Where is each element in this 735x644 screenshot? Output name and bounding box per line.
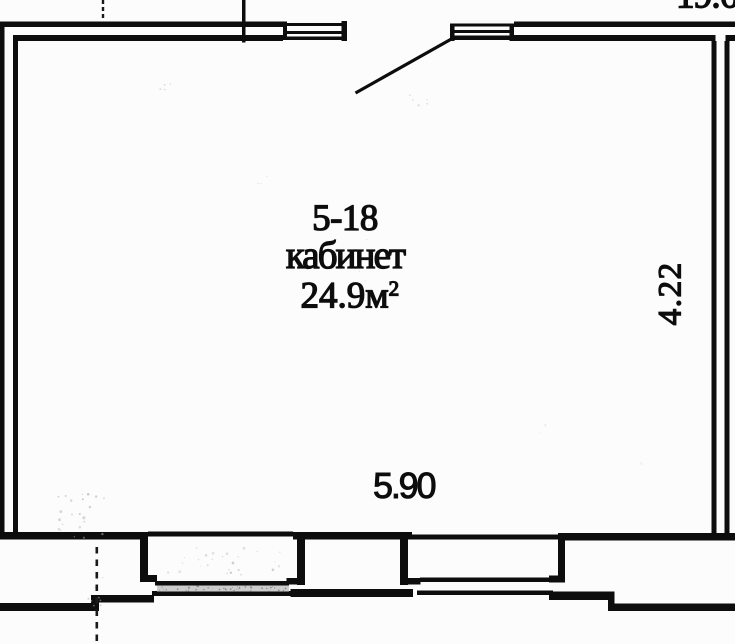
svg-text:5.90: 5.90 xyxy=(373,465,435,506)
svg-text:19.6: 19.6 xyxy=(676,0,735,17)
svg-text:4.22: 4.22 xyxy=(653,261,689,325)
svg-text:24.9м2: 24.9м2 xyxy=(301,276,400,317)
svg-text:кабинет: кабинет xyxy=(286,234,406,277)
svg-text:5-18: 5-18 xyxy=(312,198,378,239)
